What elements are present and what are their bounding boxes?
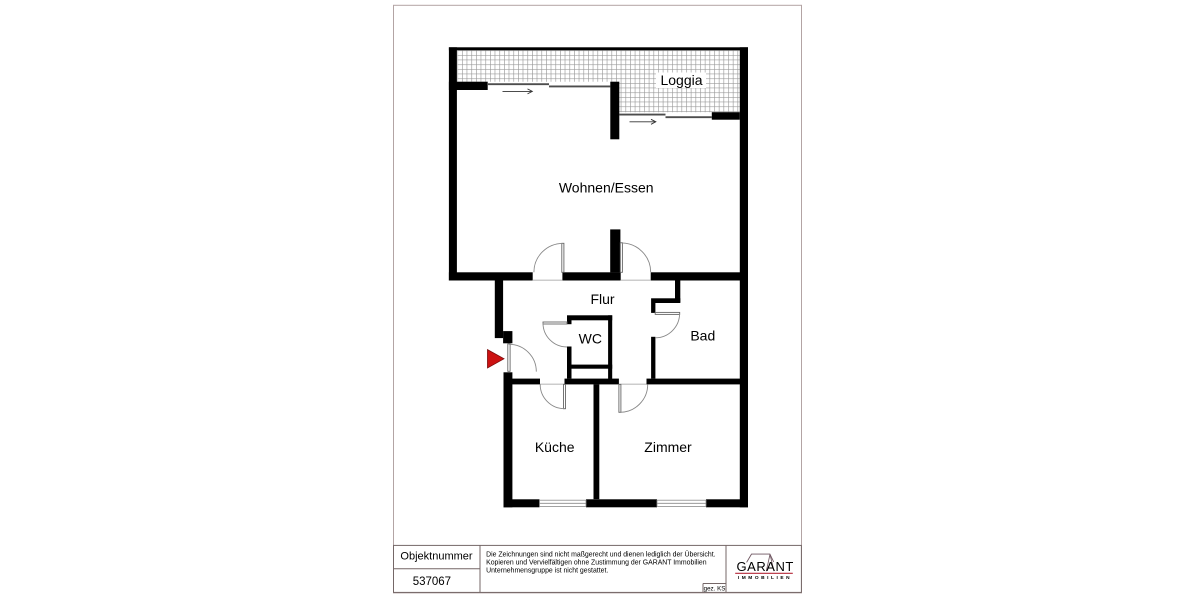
svg-text:Loggia: Loggia bbox=[660, 72, 702, 88]
svg-text:WC: WC bbox=[579, 331, 602, 347]
svg-text:Wohnen/Essen: Wohnen/Essen bbox=[559, 180, 654, 196]
svg-text:537067: 537067 bbox=[413, 576, 451, 588]
svg-text:Küche: Küche bbox=[535, 439, 575, 455]
svg-text:IMMOBILIEN: IMMOBILIEN bbox=[738, 575, 792, 581]
svg-text:GARANT: GARANT bbox=[736, 559, 793, 574]
svg-text:Bad: Bad bbox=[690, 328, 715, 344]
svg-text:Unternehmensgruppe ist nicht g: Unternehmensgruppe ist nicht gestattet. bbox=[486, 568, 608, 575]
svg-text:Zimmer: Zimmer bbox=[644, 439, 692, 455]
svg-text:Objektnummer: Objektnummer bbox=[400, 551, 472, 563]
svg-text:gez. KS: gez. KS bbox=[704, 586, 726, 593]
svg-text:Flur: Flur bbox=[590, 291, 614, 307]
svg-text:Kopieren und Vervielfältigen o: Kopieren und Vervielfältigen ohne Zustim… bbox=[486, 560, 707, 567]
svg-text:Die Zeichnungen sind nicht maß: Die Zeichnungen sind nicht maßgerecht un… bbox=[486, 550, 716, 558]
